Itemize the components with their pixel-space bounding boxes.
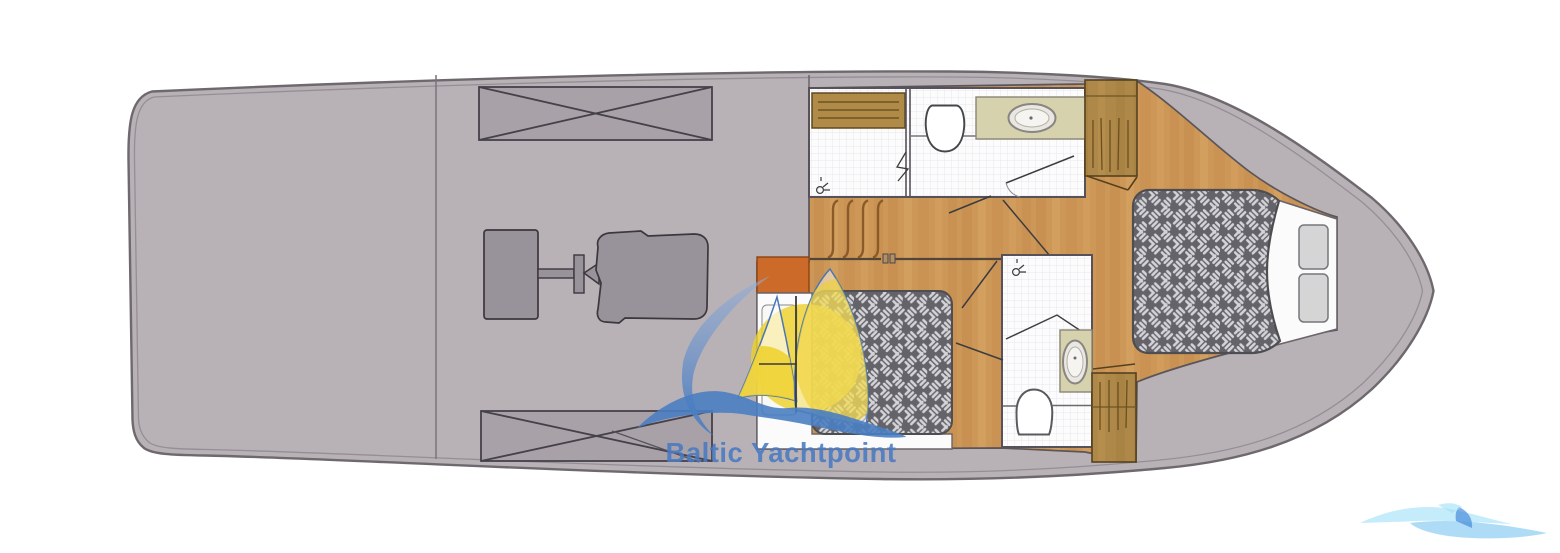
svg-text:Baltic Yachtpoint: Baltic Yachtpoint xyxy=(665,437,896,468)
